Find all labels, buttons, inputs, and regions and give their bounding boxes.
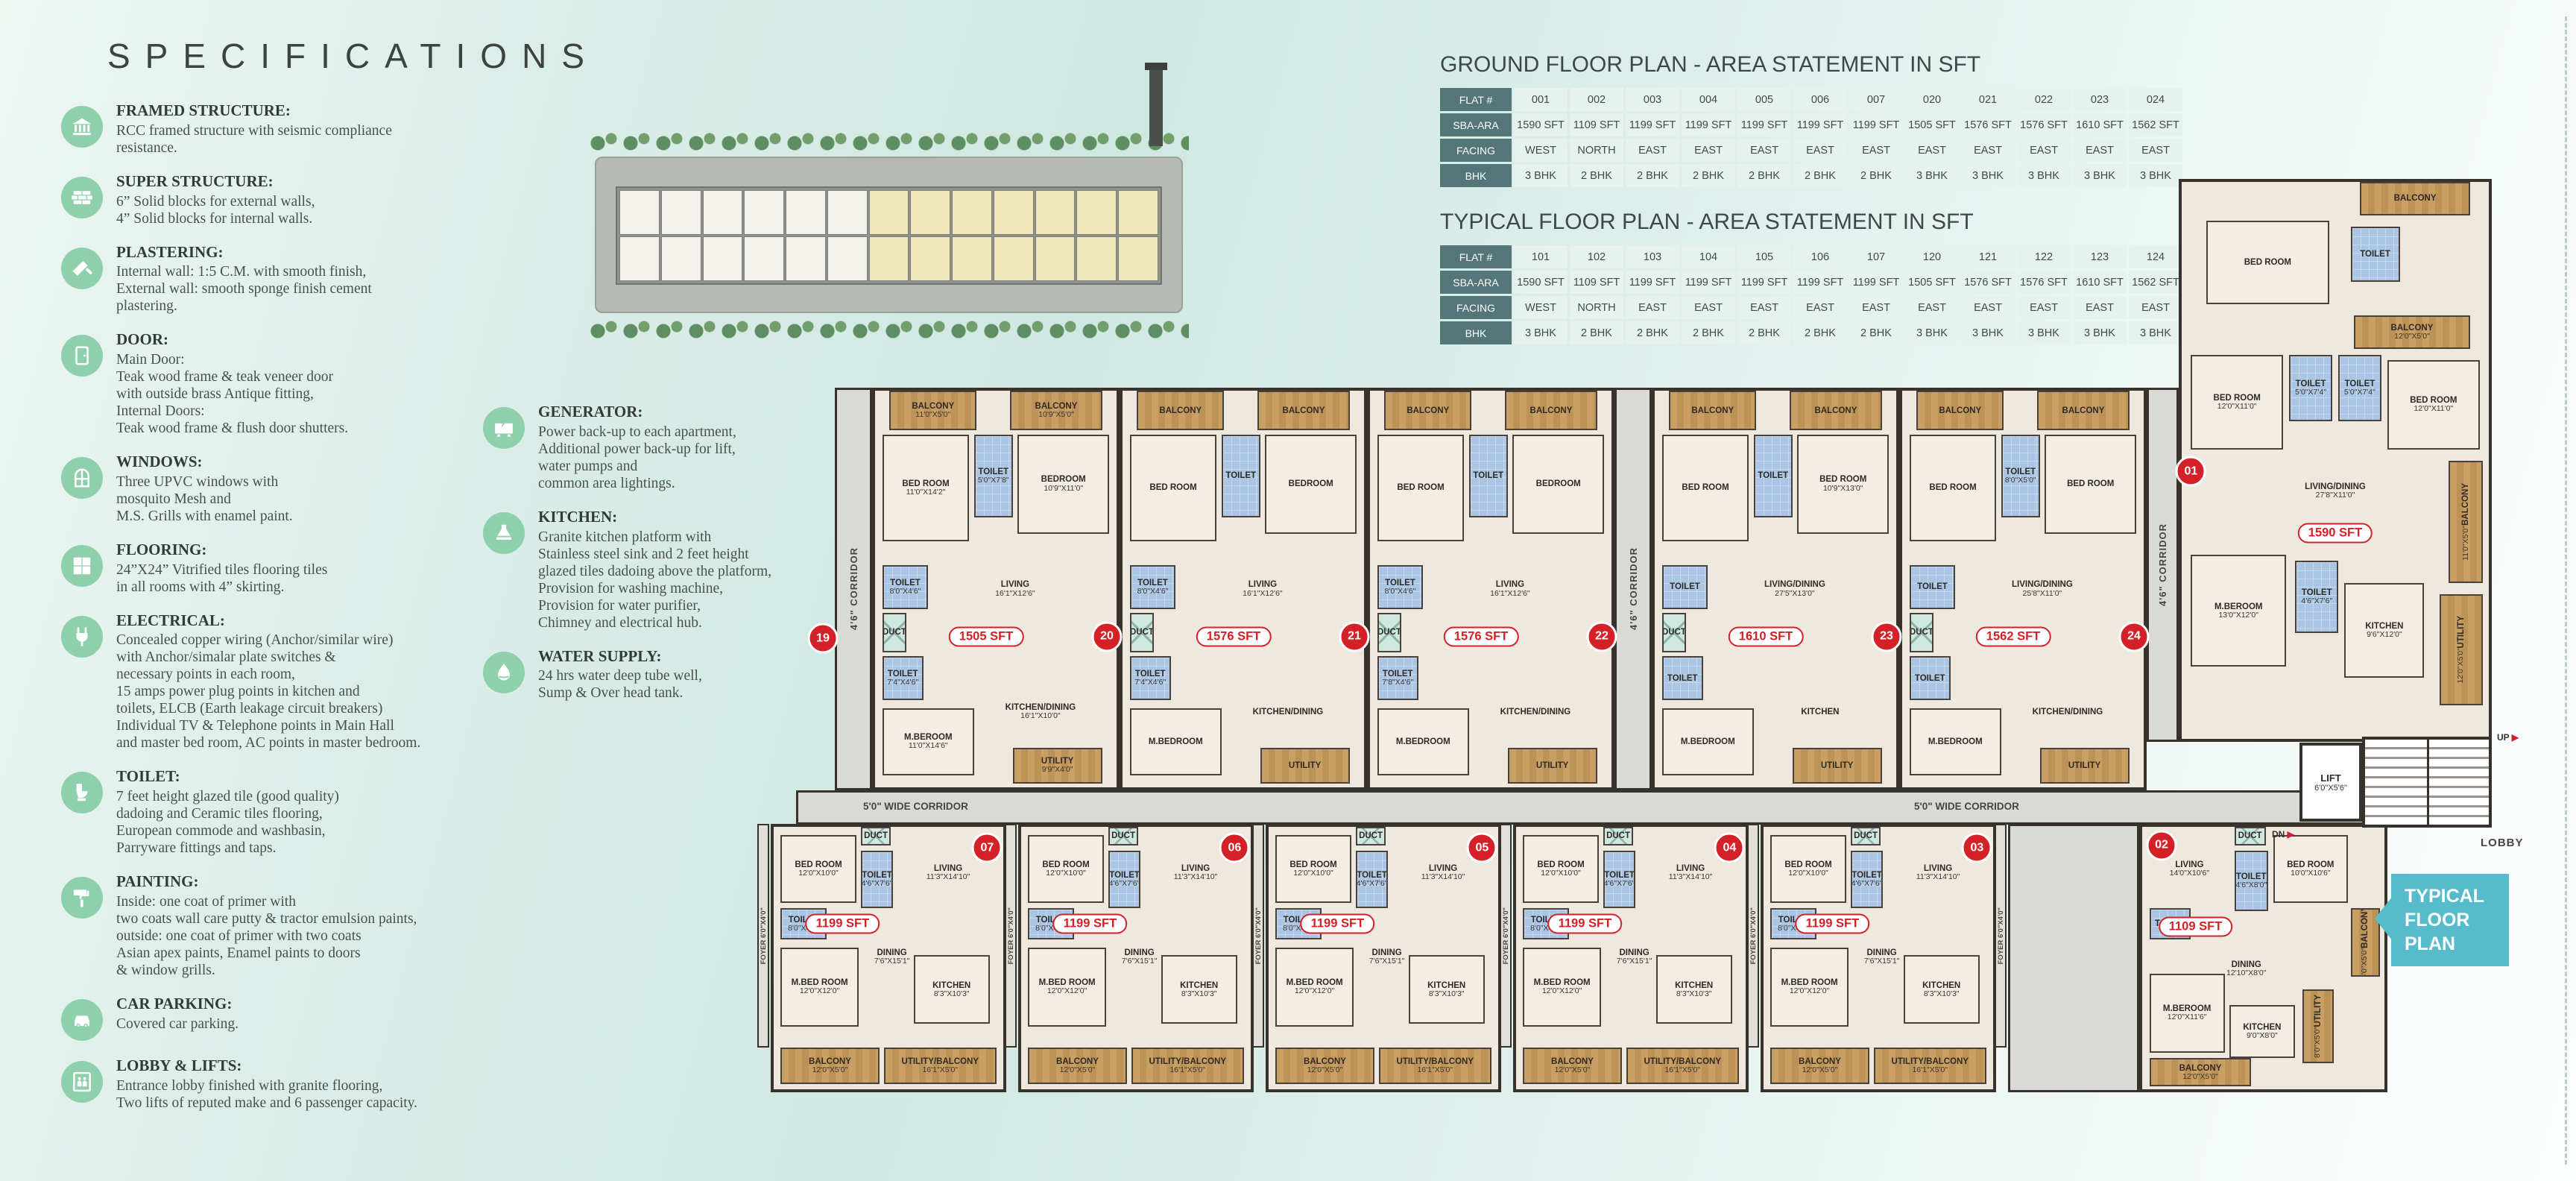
lift: LIFT6'0"X5'6" bbox=[2299, 743, 2362, 822]
site-plan-unit-cell bbox=[619, 190, 660, 235]
spec-item-line: common area lightings. bbox=[538, 475, 736, 492]
room-m-bed-room: M.BED ROOM12'0"X12'0" bbox=[1523, 948, 1601, 1027]
room-dims: 10'0"X10'6" bbox=[2291, 869, 2331, 878]
foyer-label: FOYER 6'0"X4'0" bbox=[760, 907, 768, 964]
table-cell: 1199 SFT bbox=[1626, 113, 1679, 136]
room-toilet: TOILET5'0"X7'8" bbox=[974, 435, 1013, 518]
room-m-bedroom: M.BEDROOM bbox=[1662, 708, 1754, 775]
table-cell: 004 bbox=[1682, 88, 1735, 111]
room-dims: 7'8"X4'6" bbox=[1382, 678, 1413, 687]
spec-item-text: WINDOWS:Three UPVC windows withmosquito … bbox=[116, 453, 293, 525]
room-toilet: TOILET bbox=[1910, 656, 1951, 700]
table-title: GROUND FLOOR PLAN - AREA STATEMENT IN SF… bbox=[1440, 52, 2193, 78]
room-dims: 12'0"X11'0" bbox=[2414, 405, 2453, 413]
unit-area-badge: 1199 SFT bbox=[1548, 914, 1623, 934]
room-name: M.BEDROOM bbox=[1681, 737, 1735, 746]
room-m-bed-room: M.BED ROOM12'0"X12'0" bbox=[1028, 948, 1106, 1027]
room-balcony: BALCONY bbox=[1916, 391, 2004, 430]
room-bedroom: BEDROOM10'9"X11'0" bbox=[1017, 435, 1109, 534]
unit-area-badge: 1562 SFT bbox=[1976, 626, 2051, 646]
room-balcony: BALCONY10'9"X5'0" bbox=[1010, 391, 1102, 430]
area-statement-table: GROUND FLOOR PLAN - AREA STATEMENT IN SF… bbox=[1440, 52, 2193, 187]
room-bed-room: BED ROOM12'0"X10'0" bbox=[1275, 835, 1351, 904]
room-toilet: TOILET bbox=[1662, 656, 1703, 700]
room-dims: 7'4"X4'6" bbox=[1134, 678, 1166, 687]
room-name: TOILET bbox=[1667, 674, 1698, 683]
room-dims: 16'1"X5'0" bbox=[1664, 1066, 1700, 1074]
spec-item-line: and master bed room, AC points in master… bbox=[116, 734, 420, 752]
spec-item: PAINTING:Inside: one coat of primer with… bbox=[61, 872, 501, 979]
unit-number-badge: 05 bbox=[1467, 833, 1497, 863]
table-cell: 021 bbox=[1961, 88, 2015, 111]
table-cell: 002 bbox=[1570, 88, 1623, 111]
foyer-label: FOYER 6'0"X4'0" bbox=[1502, 907, 1510, 964]
room-dims: 12'0"X10'0" bbox=[1788, 869, 1828, 878]
room-bed-room: BED ROOM bbox=[1130, 435, 1217, 542]
room-toilet: TOILET bbox=[1662, 565, 1708, 609]
room-balcony: BALCONY bbox=[1257, 391, 1349, 430]
room-name: DUCT bbox=[1606, 831, 1630, 840]
room-balcony: BALCONY12'0"X5'0" bbox=[1770, 1048, 1869, 1084]
table-cell: 023 bbox=[2073, 88, 2127, 111]
room-dims: 11'0"X14'6" bbox=[909, 742, 948, 750]
room-name: BALCONY bbox=[1407, 406, 1449, 415]
room-kitchen: KITCHEN9'6"X12'0" bbox=[2344, 583, 2424, 678]
spec-item-title: WATER SUPPLY: bbox=[538, 647, 702, 666]
spec-item-line: Teak wood frame & teak veneer door bbox=[116, 368, 348, 385]
room-name: KITCHEN bbox=[1922, 981, 1960, 990]
page-dashed-border bbox=[2565, 16, 2567, 1165]
unit-number-badge: 03 bbox=[1962, 833, 1992, 863]
room-utility-balcony: UTILITY/BALCONY16'1"X5'0" bbox=[884, 1048, 997, 1084]
spec-item-text: KITCHEN:Granite kitchen platform withSta… bbox=[538, 508, 771, 632]
room-name: BED ROOM bbox=[1682, 483, 1729, 492]
table-cell: EAST bbox=[1793, 139, 1847, 162]
room-m-bedroom: M.BEDROOM bbox=[1377, 708, 1469, 775]
window-icon bbox=[61, 457, 103, 499]
room-toilet: TOILET4'6"X8'0" bbox=[2235, 851, 2269, 911]
room-duct: DUCT bbox=[1108, 827, 1138, 845]
room-living: LIVING16'1"X12'6" bbox=[1210, 549, 1316, 629]
table-cell: EAST bbox=[1626, 139, 1679, 162]
spec-item-line: two coats wall care putty & tractor emul… bbox=[116, 910, 417, 928]
room-dims: 12'0"X10'0" bbox=[1293, 869, 1333, 878]
stairs-up-label: UP ▶ bbox=[2497, 732, 2519, 743]
spec-item: FLOORING:24”X24” Vitrified tiles floorin… bbox=[61, 541, 501, 596]
room-dims: 7'6"X15'1" bbox=[874, 957, 910, 966]
room-dims: 12'0"X5'0" bbox=[2457, 648, 2465, 684]
room-name: BALCONY bbox=[1815, 406, 1857, 415]
room-utility: UTILITY bbox=[1260, 748, 1350, 784]
room-name: KITCHEN/DINING bbox=[2033, 708, 2103, 717]
specifications-list: FRAMED STRUCTURE:RCC framed structure wi… bbox=[61, 101, 501, 1112]
room-name: LIVING bbox=[1248, 580, 1277, 589]
room-name: DINING bbox=[1866, 948, 1896, 957]
spec-item-line: Main Door: bbox=[116, 351, 348, 368]
spec-item-line: water pumps and bbox=[538, 458, 736, 475]
corridor: 4'6" CORRIDOR bbox=[1614, 388, 1652, 790]
spec-item-text: PAINTING:Inside: one coat of primer with… bbox=[116, 872, 417, 979]
room-toilet: TOILET5'0"X7'4" bbox=[2338, 355, 2381, 422]
spec-item-text: WATER SUPPLY:24 hrs water deep tube well… bbox=[538, 647, 702, 702]
spec-item-line: Entrance lobby finished with granite flo… bbox=[116, 1077, 417, 1095]
room-balcony: BALCONY bbox=[1790, 391, 1881, 430]
room-dims: 12'0"X5'0" bbox=[2182, 1073, 2218, 1081]
room-living-dining: LIVING/DINING27'8"X11'0" bbox=[2264, 461, 2406, 522]
room-name: BALCONY bbox=[1283, 406, 1325, 415]
table-cell: 1562 SFT bbox=[2129, 113, 2182, 136]
unit-area-badge: 1576 SFT bbox=[1196, 626, 1271, 646]
foyer: FOYER 6'0"X4'0" bbox=[1252, 824, 1264, 1048]
room-balcony: BALCONY12'0"X5'0" bbox=[2354, 315, 2471, 349]
room-dims: 8'0"X5'0" bbox=[2005, 476, 2036, 485]
room-toilet: TOILET bbox=[1754, 435, 1793, 518]
room-balcony: BALCONY bbox=[2360, 182, 2470, 215]
corridor: 4'6" CORRIDOR bbox=[2147, 388, 2179, 742]
spec-item: FRAMED STRUCTURE:RCC framed structure wi… bbox=[61, 101, 501, 157]
room-dims: 8'0"X5'0" bbox=[2361, 948, 2369, 976]
room-m-beroom: M.BEROOM12'0"X11'6" bbox=[2150, 974, 2225, 1053]
room-name: BED ROOM bbox=[2067, 479, 2114, 488]
spec-item-line: Provision for washing machine, bbox=[538, 580, 771, 597]
room-name: KITCHEN bbox=[1801, 708, 1839, 717]
table-cell: 007 bbox=[1849, 88, 1903, 111]
table-cell: 1199 SFT bbox=[1849, 113, 1903, 136]
spec-item-text: TOILET:7 feet height glazed tile (good q… bbox=[116, 767, 339, 857]
room-dims: 12'0"X12'0" bbox=[1295, 987, 1335, 995]
room-toilet: TOILET8'0"X4'6" bbox=[1130, 565, 1176, 609]
spec-item-line: Internal wall: 1:5 C.M. with smooth fini… bbox=[116, 263, 372, 280]
room-name: M.BEDROOM bbox=[1396, 737, 1450, 746]
room-utility: UTILITY bbox=[1508, 748, 1597, 784]
room-name: M.BEROOM bbox=[2214, 602, 2263, 611]
unit-23: BALCONYBALCONYBED ROOMTOILETBED ROOM10'9… bbox=[1652, 388, 1899, 790]
room-toilet: TOILET8'0"X5'0" bbox=[2001, 435, 2040, 518]
room-name: BALCONY bbox=[1159, 406, 1202, 415]
room-duct: DUCT bbox=[1130, 613, 1154, 652]
room-dims: 12'0"X12'0" bbox=[800, 987, 840, 995]
table-cell: EAST bbox=[1961, 139, 2015, 162]
spec-item-line: resistance. bbox=[116, 139, 392, 157]
spec-item: WINDOWS:Three UPVC windows withmosquito … bbox=[61, 453, 501, 525]
room-toilet: TOILET5'0"X7'4" bbox=[2289, 355, 2332, 422]
typical-floor-plan-drawing: 4'6" CORRIDOR4'6" CORRIDOR4'6" CORRIDOR5… bbox=[751, 179, 2575, 1103]
spec-item-line: Parryware fittings and taps. bbox=[116, 840, 339, 857]
spec-item-title: GENERATOR: bbox=[538, 403, 736, 421]
table-row-header: FACING bbox=[1440, 139, 1512, 162]
room-bed-room: BED ROOM bbox=[2206, 221, 2329, 304]
wide-corridor bbox=[796, 790, 2391, 825]
room-name: BED ROOM bbox=[1397, 483, 1444, 492]
room-name: DINING bbox=[877, 948, 906, 957]
spec-item-title: WINDOWS: bbox=[116, 453, 293, 471]
spec-item-text: PLASTERING:Internal wall: 1:5 C.M. with … bbox=[116, 243, 372, 315]
spec-item-line: mosquito Mesh and bbox=[116, 491, 293, 508]
room-dims: 12'0"X10'0" bbox=[1541, 869, 1581, 878]
room-balcony: BALCONY12'0"X5'0" bbox=[1028, 1048, 1126, 1084]
room-name: LIVING/DINING bbox=[1764, 580, 1825, 589]
wide-corridor-label: 5'0" WIDE CORRIDOR bbox=[863, 801, 968, 812]
room-duct: DUCT bbox=[1851, 827, 1881, 845]
spec-item-title: PAINTING: bbox=[116, 872, 417, 891]
site-plan-unit-cell bbox=[661, 236, 701, 281]
foyer: FOYER 6'0"X4'0" bbox=[1500, 824, 1512, 1048]
spec-item-line: Internal Doors: bbox=[116, 403, 348, 420]
room-dims: 12'0"X11'0" bbox=[2217, 403, 2257, 411]
room-dims: 10'9"X11'0" bbox=[1044, 485, 1083, 493]
room-dims: 12'0"X5'0" bbox=[2394, 333, 2430, 341]
brochure-page: SPECIFICATIONS FRAMED STRUCTURE:RCC fram… bbox=[0, 0, 2576, 1181]
room-dims: 12'0"X5'0" bbox=[1555, 1066, 1591, 1074]
unit-02: LIVING14'0"X10'6"DUCTTOILET4'6"X8'0"BED … bbox=[2139, 824, 2387, 1092]
trowel-icon bbox=[61, 248, 103, 289]
room-duct: DUCT bbox=[861, 827, 891, 845]
spec-item: ELECTRICAL:Concealed copper wiring (Anch… bbox=[61, 611, 501, 752]
room-dims: 8'0"X4'6" bbox=[1137, 588, 1169, 596]
room-dims: 7'6"X15'1" bbox=[1864, 957, 1900, 966]
unit-area-badge: 1505 SFT bbox=[949, 626, 1023, 646]
unit-number-badge: 02 bbox=[2147, 830, 2177, 860]
room-name: UTILITY bbox=[2314, 995, 2323, 1027]
unit-area-badge: 1610 SFT bbox=[1729, 626, 1803, 646]
room-name: UTILITY bbox=[2457, 616, 2466, 648]
spec-item-line: European commode and washbasin, bbox=[116, 822, 339, 840]
room-name: BALCONY bbox=[2461, 483, 2470, 526]
typical-floor-plan-callout: TYPICAL FLOOR PLAN bbox=[2391, 874, 2509, 966]
room-balcony: BALCONY12'0"X5'0" bbox=[1275, 1048, 1374, 1084]
room-toilet: TOILET4'6"X7'6" bbox=[1603, 851, 1635, 908]
unit-number-badge: 19 bbox=[808, 623, 839, 654]
room-dims: 8'0"X5'0" bbox=[2314, 1027, 2322, 1058]
table-cell: 022 bbox=[2017, 88, 2071, 111]
room-name: DUCT bbox=[1854, 831, 1878, 840]
foyer-label: FOYER 6'0"X4'0" bbox=[1749, 907, 1758, 964]
lift-dims: 6'0"X5'6" bbox=[2314, 784, 2347, 793]
room-kitchen: KITCHEN bbox=[1758, 680, 1881, 743]
room-dims: 13'0"X12'0" bbox=[2218, 611, 2258, 620]
room-dims: 7'6"X15'1" bbox=[1617, 957, 1652, 966]
room-balcony: BALCONY11'0"X5'0" bbox=[889, 391, 976, 430]
room-dims: 4'6"X7'6" bbox=[1109, 880, 1140, 888]
room-name: KITCHEN bbox=[932, 981, 970, 990]
room-balcony: BALCONY12'0"X5'0" bbox=[1523, 1048, 1621, 1084]
room-name: KITCHEN bbox=[1180, 981, 1218, 990]
unit-04: BED ROOM12'0"X10'0"DUCTTOILET4'6"X7'6"LI… bbox=[1513, 824, 1749, 1092]
room-utility: UTILITY9'9"X4'0" bbox=[1013, 748, 1102, 784]
unit-area-badge: 1109 SFT bbox=[2159, 916, 2233, 936]
room-dims: 8'3"X10'3" bbox=[1181, 990, 1217, 998]
room-duct: DUCT bbox=[883, 613, 906, 652]
room-name: KITCHEN/DINING bbox=[1500, 708, 1571, 717]
spec-item-line: glazed tiles dadoing above the platform, bbox=[538, 563, 771, 580]
staircase bbox=[2362, 737, 2492, 828]
room-bed-room: BED ROOM10'9"X13'0" bbox=[1797, 435, 1889, 534]
room-utility: UTILITY bbox=[2040, 748, 2130, 784]
unit-03: BED ROOM12'0"X10'0"DUCTTOILET4'6"X7'6"LI… bbox=[1761, 824, 1996, 1092]
water-drop-icon bbox=[483, 652, 525, 693]
site-entrance-tower bbox=[1149, 69, 1163, 146]
room-kitchen: KITCHEN8'3"X10'3" bbox=[914, 955, 990, 1024]
spec-item-title: CAR PARKING: bbox=[116, 995, 239, 1013]
table-row-header: FLAT # bbox=[1440, 88, 1512, 111]
room-bed-room: BED ROOM12'0"X10'0" bbox=[1028, 835, 1104, 904]
lift-label: LIFT bbox=[2320, 772, 2340, 784]
spec-item-title: DOOR: bbox=[116, 330, 348, 349]
room-bed-room: BED ROOM11'0"X14'2" bbox=[883, 435, 970, 542]
room-m-beroom: M.BEROOM13'0"X12'0" bbox=[2191, 555, 2286, 666]
room-name: TOILET bbox=[1917, 582, 1948, 591]
room-name: BED ROOM bbox=[1149, 483, 1196, 492]
car-icon bbox=[61, 999, 103, 1041]
room-dims: 12'0"X5'0" bbox=[812, 1066, 848, 1074]
unit-22: BALCONYBALCONYBED ROOMTOILETBEDROOMTOILE… bbox=[1367, 388, 1614, 790]
corridor-label: 4'6" CORRIDOR bbox=[1628, 547, 1639, 630]
spec-item-text: ELECTRICAL:Concealed copper wiring (Anch… bbox=[116, 611, 420, 752]
room-duct: DUCT bbox=[1910, 613, 1933, 652]
room-dims: 12'0"X5'0" bbox=[1307, 1066, 1343, 1074]
plug-icon bbox=[61, 616, 103, 658]
table-cell: 1199 SFT bbox=[1737, 113, 1791, 136]
spec-item-title: KITCHEN: bbox=[538, 508, 771, 526]
room-dims: 11'3"X14'10" bbox=[1916, 873, 1960, 881]
spec-item-line: Stainless steel sink and 2 feet height bbox=[538, 546, 771, 563]
room-balcony: BALCONY bbox=[1505, 391, 1597, 430]
room-kitchen: KITCHEN8'3"X10'3" bbox=[1904, 955, 1980, 1024]
room-bedroom: BEDROOM bbox=[1512, 435, 1604, 534]
site-plan-unit-cell bbox=[619, 236, 660, 281]
room-name: UTILITY bbox=[1289, 761, 1321, 770]
spec-item: SUPER STRUCTURE:6” Solid blocks for exte… bbox=[61, 172, 501, 227]
room-name: DUCT bbox=[1910, 628, 1933, 637]
room-kitchen: KITCHEN8'3"X10'3" bbox=[1656, 955, 1732, 1024]
room-name: BALCONY bbox=[2062, 406, 2105, 415]
room-m-bed-room: M.BED ROOM12'0"X12'0" bbox=[1275, 948, 1354, 1027]
unit-area-badge: 1576 SFT bbox=[1444, 626, 1518, 646]
room-toilet: TOILET7'4"X4'6" bbox=[1130, 656, 1171, 700]
tiles-icon bbox=[61, 545, 103, 587]
room-bed-room: BED ROOM bbox=[2045, 435, 2136, 534]
room-name: UTILITY bbox=[1536, 761, 1568, 770]
door-icon bbox=[61, 335, 103, 377]
unit-01: BALCONYBED ROOMTOILETBALCONY12'0"X5'0"BE… bbox=[2179, 179, 2492, 742]
room-kitchen-dining: KITCHEN/DINING bbox=[2006, 680, 2129, 743]
table-cell: EAST bbox=[1849, 139, 1903, 162]
room-dims: 27'8"X11'0" bbox=[2316, 491, 2355, 500]
room-dims: 12'0"X10'0" bbox=[1046, 869, 1086, 878]
spec-item-line: Teak wood frame & flush door shutters. bbox=[116, 420, 348, 437]
spec-item-line: Two lifts of reputed make and 6 passenge… bbox=[116, 1095, 417, 1112]
room-dims: 12'0"X11'6" bbox=[2168, 1013, 2207, 1021]
site-plan-unit-cell bbox=[703, 190, 743, 235]
specifications-title: SPECIFICATIONS bbox=[107, 36, 501, 76]
bricks-icon bbox=[61, 177, 103, 218]
room-toilet: TOILET4'6"X7'6" bbox=[1356, 851, 1388, 908]
unit-06: BED ROOM12'0"X10'0"DUCTTOILET4'6"X7'6"LI… bbox=[1018, 824, 1254, 1092]
table-cell: EAST bbox=[1737, 139, 1791, 162]
spec-item-line: with Anchor/simalar plate switches & bbox=[116, 649, 420, 666]
room-dims: 8'0"X4'6" bbox=[890, 588, 921, 596]
spec-item-line: dadoing and Ceramic tiles flooring, bbox=[116, 805, 339, 822]
room-name: DINING bbox=[1124, 948, 1154, 957]
spec-item-text: SUPER STRUCTURE:6” Solid blocks for exte… bbox=[116, 172, 315, 227]
stairs-down-label: DN ▶ bbox=[2272, 829, 2294, 840]
unit-number-badge: 23 bbox=[1872, 621, 1902, 652]
room-m-bedroom: M.BEDROOM bbox=[1910, 708, 2001, 775]
room-dims: 9'9"X4'0" bbox=[1042, 766, 1073, 774]
corridor-label: 4'6" CORRIDOR bbox=[848, 547, 859, 630]
unit-number-badge: 07 bbox=[972, 833, 1003, 863]
room-dims: 9'0"X8'0" bbox=[2247, 1032, 2278, 1040]
room-name: DUCT bbox=[2238, 831, 2262, 840]
room-toilet: TOILET4'6"X7'6" bbox=[1108, 851, 1140, 908]
room-name: DUCT bbox=[1377, 628, 1401, 637]
table-cell: EAST bbox=[2017, 139, 2071, 162]
spec-item-line: necessary points in each room, bbox=[116, 666, 420, 683]
room-utility: UTILITY8'0"X5'0" bbox=[2302, 989, 2334, 1063]
room-toilet: TOILET4'6"X7'6" bbox=[861, 851, 893, 908]
room-dims: 8'3"X10'3" bbox=[1429, 990, 1465, 998]
room-dims: 5'0"X7'8" bbox=[978, 476, 1009, 485]
generator-icon bbox=[483, 407, 525, 449]
table-row-header: SBA-ARA bbox=[1440, 113, 1512, 136]
room-name: M.BEDROOM bbox=[1928, 737, 1983, 746]
room-name: BALCONY bbox=[2394, 194, 2437, 203]
spec-item-line: Sump & Over head tank. bbox=[538, 684, 702, 702]
table-cell: 001 bbox=[1514, 88, 1568, 111]
room-name: BED ROOM bbox=[1819, 475, 1866, 484]
spec-item-text: GENERATOR:Power back-up to each apartmen… bbox=[538, 403, 736, 492]
room-dims: 11'3"X14'10" bbox=[1174, 873, 1218, 881]
unit-area-badge: 1199 SFT bbox=[1796, 914, 1870, 934]
paint-roller-icon bbox=[61, 877, 103, 919]
room-name: TOILET bbox=[2236, 872, 2267, 881]
room-dims: 9'6"X12'0" bbox=[2367, 631, 2402, 639]
spec-item-line: with outside brass Antique fitting, bbox=[116, 385, 348, 403]
room-bed-room: BED ROOM12'0"X10'0" bbox=[780, 835, 856, 904]
room-name: LIVING bbox=[1001, 580, 1029, 589]
room-bed-room: BED ROOM12'0"X10'0" bbox=[1770, 835, 1846, 904]
room-name: UTILITY bbox=[2068, 761, 2100, 770]
unit-number-badge: 22 bbox=[1587, 621, 1617, 652]
foyer-label: FOYER 6'0"X4'0" bbox=[1254, 907, 1263, 964]
spec-item-line: 6” Solid blocks for external walls, bbox=[116, 193, 315, 210]
room-duct: DUCT bbox=[1356, 827, 1386, 845]
room-toilet: TOILET8'0"X4'6" bbox=[883, 565, 929, 609]
room-dims: 8'0"X4'6" bbox=[1385, 588, 1416, 596]
elevator-icon bbox=[61, 1061, 103, 1103]
room-dims: 16'1"X5'0" bbox=[922, 1066, 958, 1074]
room-name: UTILITY bbox=[1821, 761, 1853, 770]
room-utility-balcony: UTILITY/BALCONY16'1"X5'0" bbox=[1379, 1048, 1491, 1084]
room-balcony: BALCONY bbox=[1669, 391, 1756, 430]
room-name: BALCONY bbox=[1939, 406, 1981, 415]
unit-area-badge: 1199 SFT bbox=[1301, 914, 1375, 934]
spec-item-text: LOBBY & LIFTS:Entrance lobby finished wi… bbox=[116, 1056, 417, 1112]
spec-item-line: Additional power back-up for lift, bbox=[538, 441, 736, 458]
room-balcony: BALCONY bbox=[1384, 391, 1471, 430]
room-dims: 4'6"X7'6" bbox=[2301, 597, 2332, 605]
room-dims: 16'1"X5'0" bbox=[1169, 1066, 1205, 1074]
spec-item: TOILET:7 feet height glazed tile (good q… bbox=[61, 767, 501, 857]
unit-number-badge: 20 bbox=[1092, 621, 1123, 652]
spec-item-line: Granite kitchen platform with bbox=[538, 529, 771, 546]
table-cell: 006 bbox=[1793, 88, 1847, 111]
spec-item-line: 15 amps power plug points in kitchen and bbox=[116, 683, 420, 700]
spec-item-title: LOBBY & LIFTS: bbox=[116, 1056, 417, 1075]
room-dims: 11'0"X14'2" bbox=[906, 488, 946, 497]
spec-item-line: Provision for water purifier, bbox=[538, 597, 771, 614]
foyer: FOYER 6'0"X4'0" bbox=[1995, 824, 2007, 1048]
